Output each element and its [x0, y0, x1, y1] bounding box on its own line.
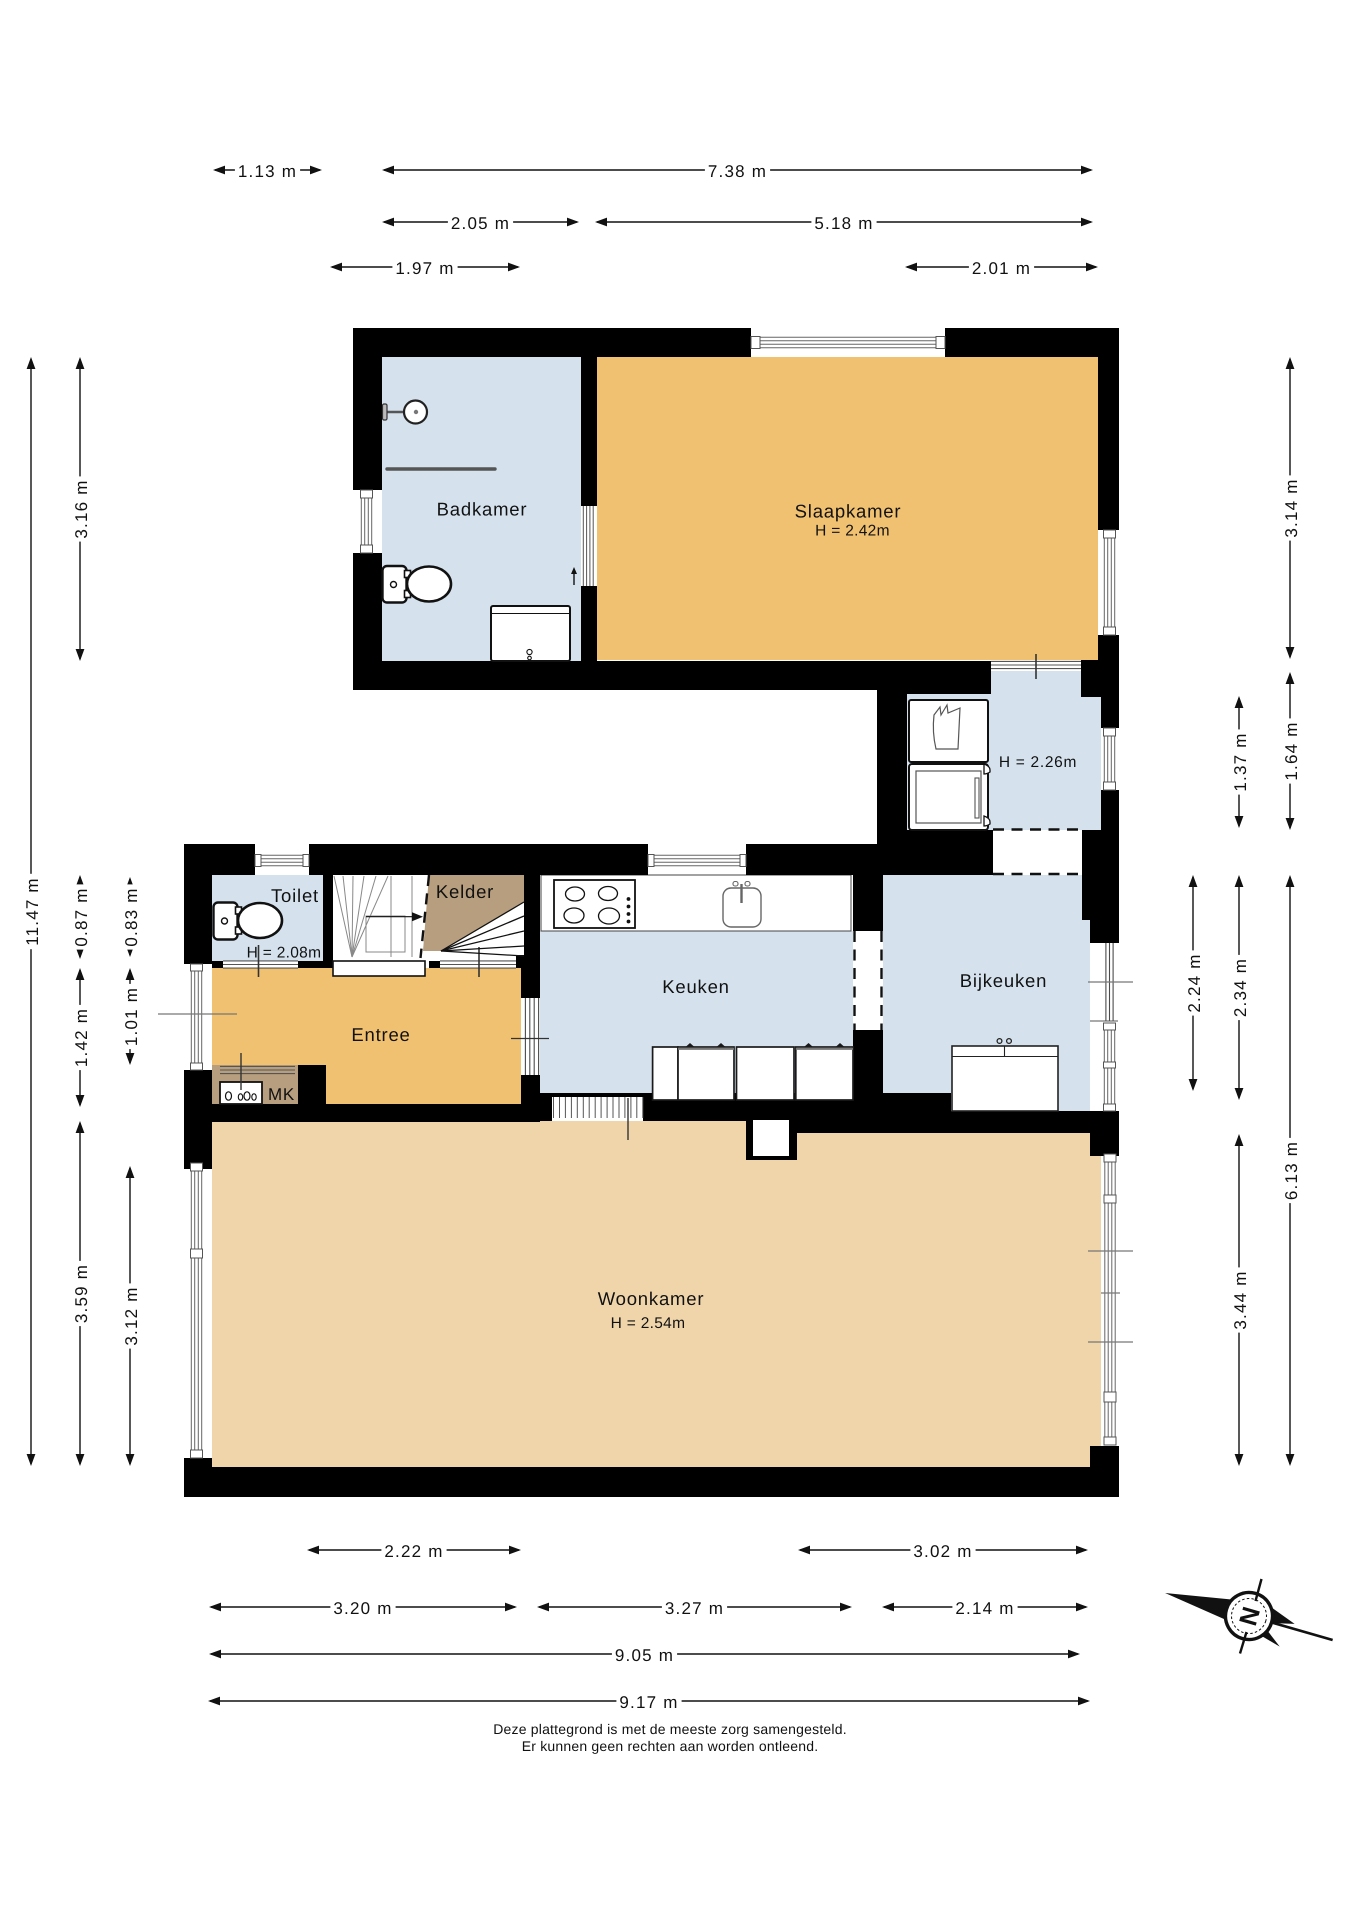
svg-text:Entree: Entree: [351, 1024, 410, 1045]
svg-text:3.44 m: 3.44 m: [1231, 1270, 1250, 1329]
svg-text:H = 2.08m: H = 2.08m: [247, 945, 322, 962]
svg-text:3.20 m: 3.20 m: [333, 1599, 392, 1618]
svg-text:3.12 m: 3.12 m: [122, 1286, 141, 1345]
svg-text:2.24 m: 2.24 m: [1185, 953, 1204, 1012]
svg-text:H = 2.26m: H = 2.26m: [999, 754, 1077, 771]
svg-text:2.22 m: 2.22 m: [384, 1542, 443, 1561]
svg-text:MK: MK: [268, 1085, 295, 1104]
svg-text:Bijkeuken: Bijkeuken: [960, 970, 1047, 991]
svg-text:5.18 m: 5.18 m: [814, 214, 873, 233]
svg-text:9.17 m: 9.17 m: [619, 1693, 678, 1712]
svg-text:2.05 m: 2.05 m: [451, 214, 510, 233]
svg-text:11.47 m: 11.47 m: [23, 877, 42, 946]
svg-text:9.05 m: 9.05 m: [615, 1646, 674, 1665]
svg-text:Deze plattegrond is met de mee: Deze plattegrond is met de meeste zorg s…: [493, 1721, 847, 1737]
svg-text:Keuken: Keuken: [662, 976, 730, 997]
svg-text:1.01 m: 1.01 m: [122, 987, 141, 1046]
svg-text:2.14 m: 2.14 m: [955, 1599, 1014, 1618]
svg-text:3.16 m: 3.16 m: [72, 479, 91, 538]
svg-text:Woonkamer: Woonkamer: [598, 1288, 705, 1309]
svg-text:6.13 m: 6.13 m: [1282, 1141, 1301, 1200]
svg-text:H = 2.42m: H = 2.42m: [815, 523, 890, 540]
svg-text:1.42 m: 1.42 m: [72, 1008, 91, 1067]
svg-text:3.27 m: 3.27 m: [665, 1599, 724, 1618]
svg-text:Badkamer: Badkamer: [437, 499, 528, 520]
svg-text:1.97 m: 1.97 m: [395, 259, 454, 278]
svg-text:Toilet: Toilet: [271, 885, 319, 906]
svg-text:1.37 m: 1.37 m: [1231, 732, 1250, 791]
svg-text:Slaapkamer: Slaapkamer: [795, 500, 902, 521]
svg-text:2.34 m: 2.34 m: [1231, 958, 1250, 1017]
svg-text:3.02 m: 3.02 m: [913, 1542, 972, 1561]
svg-text:Kelder: Kelder: [436, 881, 494, 902]
svg-text:1.64 m: 1.64 m: [1282, 721, 1301, 780]
svg-text:1.13 m: 1.13 m: [238, 162, 297, 181]
svg-text:Er kunnen geen rechten aan wor: Er kunnen geen rechten aan worden ontlee…: [522, 1738, 819, 1754]
svg-text:H = 2.54m: H = 2.54m: [611, 1315, 686, 1332]
svg-text:7.38 m: 7.38 m: [708, 162, 767, 181]
svg-text:0.87 m: 0.87 m: [72, 887, 91, 946]
svg-text:2.01 m: 2.01 m: [972, 259, 1031, 278]
svg-text:3.14 m: 3.14 m: [1282, 478, 1301, 537]
svg-text:3.59 m: 3.59 m: [72, 1264, 91, 1323]
svg-text:0.83 m: 0.83 m: [122, 887, 141, 946]
